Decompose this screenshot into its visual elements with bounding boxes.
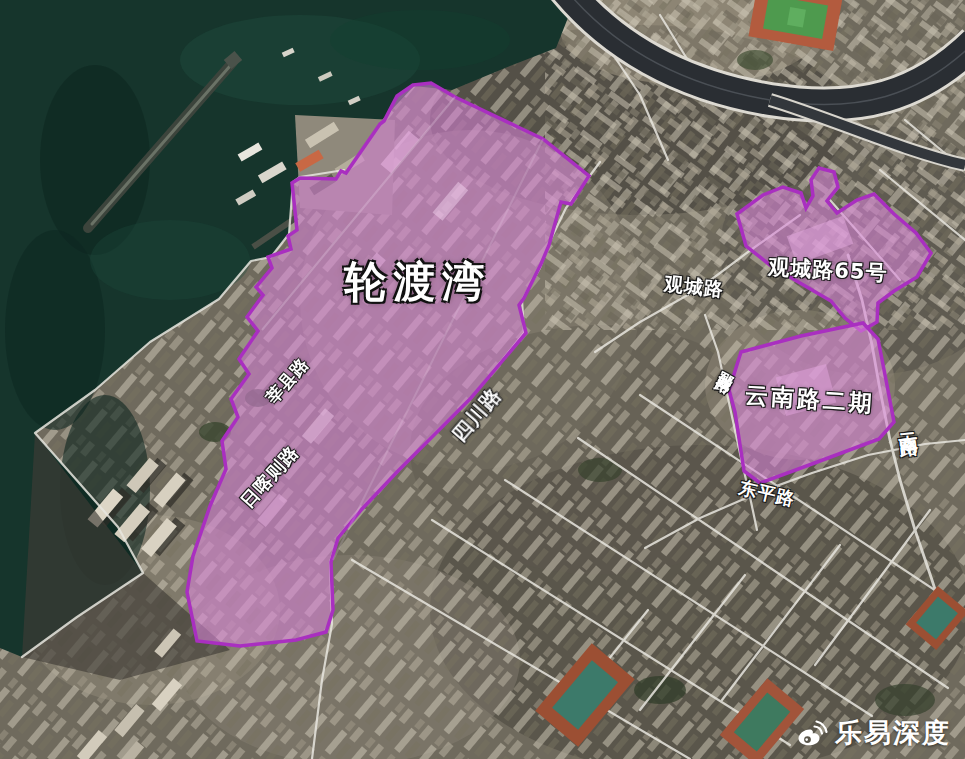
zone-label-lunduwan: 轮渡湾 [345,260,492,304]
watermark-text: 乐易深度 [835,715,951,751]
weibo-icon [794,718,828,748]
watermark: 乐易深度 [794,715,951,751]
satellite-map: 轮渡湾 观城路65号 云南路二期 观城路 四川路 莘县路 日喀则路 东平路 郓城… [0,0,965,759]
satellite-background [0,0,965,759]
